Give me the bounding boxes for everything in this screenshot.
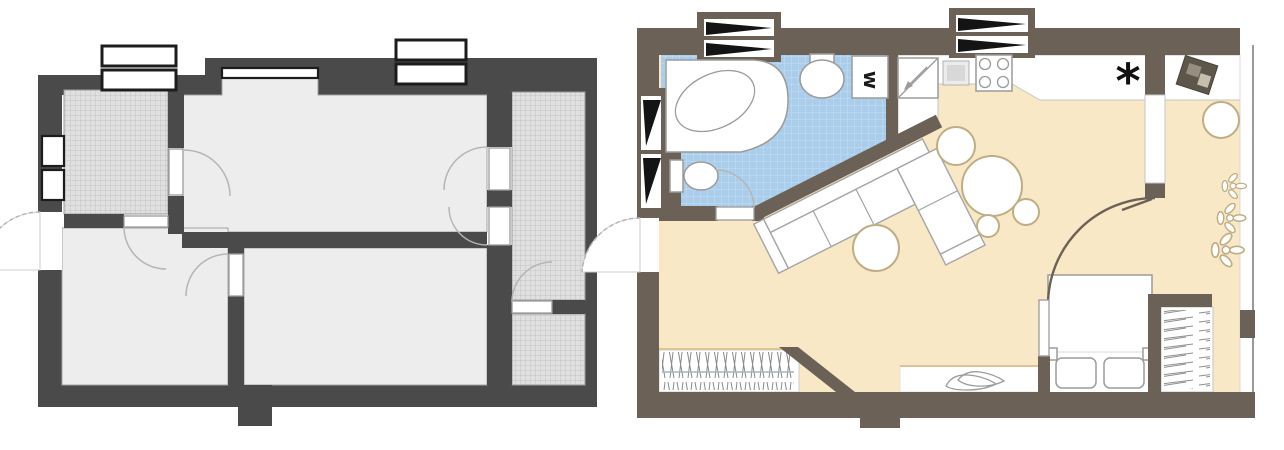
washbasin-icon — [800, 60, 844, 98]
stool-icon — [977, 215, 999, 237]
bed — [1048, 275, 1152, 393]
window-top-right-after — [949, 8, 1035, 58]
window-top-left-after — [697, 12, 781, 62]
floor-plans-screenshot: w * — [0, 0, 1284, 450]
refrigerator-label: * — [1115, 54, 1140, 110]
room-bottom-middle-before — [244, 248, 487, 385]
chair-icon — [937, 127, 975, 165]
room-hatched-bottomright-before — [512, 314, 585, 385]
wardrobe-clothes-rail — [659, 349, 799, 392]
hallway-strip — [900, 366, 1040, 392]
bathtub-icon — [666, 60, 788, 152]
wardrobe-bedroom — [1161, 307, 1213, 392]
pillow-icon — [1056, 358, 1096, 388]
coffee-table-icon — [853, 225, 899, 271]
floor-plan-before — [0, 40, 597, 426]
room-bottom-left-before — [62, 228, 228, 385]
floor-plan-after: w * — [582, 8, 1255, 428]
entrance-door-before — [0, 212, 62, 270]
stool-icon — [1013, 199, 1039, 225]
toilet-tank-icon — [670, 160, 683, 192]
toilet-icon — [684, 162, 718, 190]
column-bottom-before — [238, 385, 272, 426]
stool-icon — [1203, 102, 1239, 138]
floor-plans-canvas: w * — [0, 0, 1284, 450]
hatched-loggia-strip-before — [512, 92, 585, 300]
tall-cabinet — [1145, 95, 1165, 183]
room-top-before — [182, 77, 487, 232]
washing-machine-label: w — [859, 71, 883, 89]
window-bump-before — [222, 68, 318, 78]
room-hatched-topleft-before — [64, 90, 168, 214]
pillow-icon — [1104, 358, 1144, 388]
